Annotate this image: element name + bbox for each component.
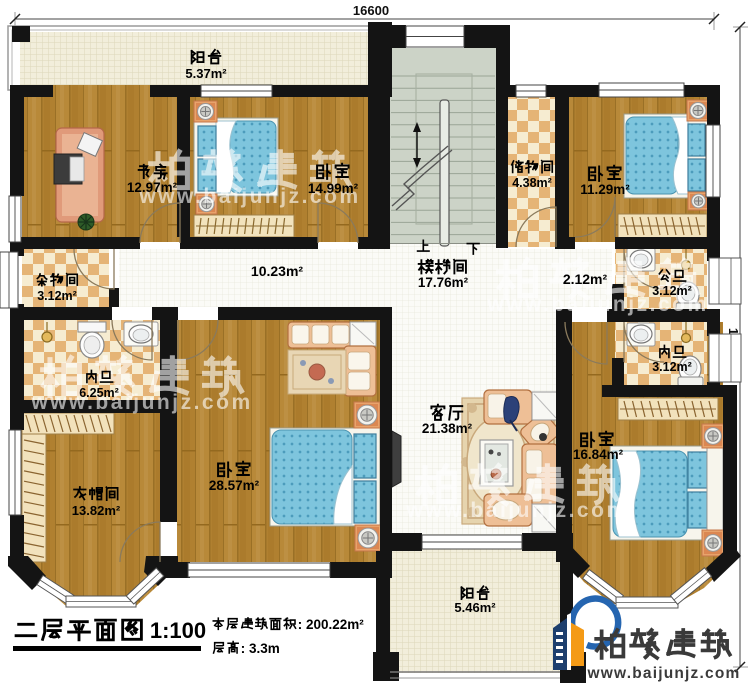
svg-text:3.12m²: 3.12m² (652, 284, 692, 298)
svg-text:13.82m²: 13.82m² (72, 503, 121, 518)
svg-text:5.37m²: 5.37m² (185, 66, 227, 81)
svg-text:28.57m²: 28.57m² (209, 478, 260, 493)
svg-text:www.baijunjz.com: www.baijunjz.com (405, 499, 627, 522)
svg-text:4.38m²: 4.38m² (512, 176, 552, 190)
svg-text:6.25m²: 6.25m² (79, 386, 119, 400)
svg-text:5.46m²: 5.46m² (454, 600, 496, 615)
svg-text:11.29m²: 11.29m² (580, 182, 630, 197)
svg-text::: : (298, 616, 303, 632)
svg-text:12.97m²: 12.97m² (127, 180, 178, 195)
svg-text:2.12m²: 2.12m² (563, 271, 608, 287)
svg-text:16600: 16600 (353, 3, 389, 18)
svg-text:1:100: 1:100 (150, 618, 206, 643)
svg-text:17.76m²: 17.76m² (418, 275, 469, 290)
svg-text:10.23m²: 10.23m² (251, 263, 303, 279)
svg-text:16.84m²: 16.84m² (573, 447, 624, 462)
svg-text:21.38m²: 21.38m² (422, 421, 473, 436)
svg-text::: : (241, 640, 246, 656)
svg-text:3.3m: 3.3m (249, 641, 280, 656)
svg-text:3.12m²: 3.12m² (652, 360, 692, 374)
svg-text:www.baijunjz.com: www.baijunjz.com (30, 391, 252, 414)
svg-text:3.12m²: 3.12m² (37, 289, 77, 303)
svg-text:14.99m²: 14.99m² (308, 181, 359, 196)
svg-text:200.22m²: 200.22m² (306, 617, 364, 632)
svg-text:www.baijunjz.com: www.baijunjz.com (587, 665, 741, 682)
